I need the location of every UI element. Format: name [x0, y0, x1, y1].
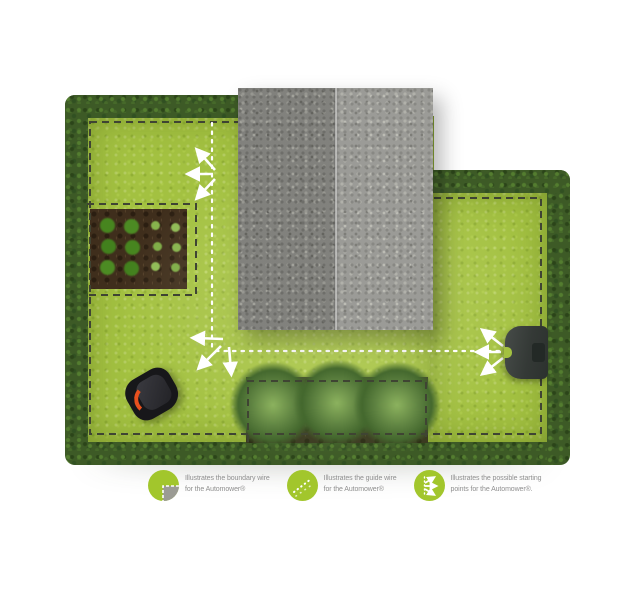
legend: Illustrates the boundary wire for the Au…	[148, 470, 541, 501]
legend-item-guide-wire: Illustrates the guide wire for the Autom…	[287, 470, 397, 501]
hedge-right	[547, 170, 570, 465]
lawn-surface-right	[430, 191, 548, 443]
boundary-wire-icon	[148, 470, 179, 501]
legend-line: Illustrates the boundary wire	[185, 474, 270, 485]
legend-text-starting-points: Illustrates the possible starting points…	[451, 470, 542, 495]
hedge-left	[65, 95, 88, 465]
bush	[353, 361, 441, 449]
legend-item-starting-points: Illustrates the possible starting points…	[414, 470, 542, 501]
guide-wire-icon	[287, 470, 318, 501]
legend-line: for the Automower®	[324, 485, 397, 496]
legend-line: for the Automower®	[185, 485, 270, 496]
legend-line: Illustrates the possible starting	[451, 474, 542, 485]
garden-plants-large	[100, 218, 115, 233]
hedge-top-right	[433, 170, 570, 193]
starting-points-icon	[414, 470, 445, 501]
legend-item-boundary-wire: Illustrates the boundary wire for the Au…	[148, 470, 270, 501]
charging-station	[505, 326, 548, 379]
legend-text-guide-wire: Illustrates the guide wire for the Autom…	[324, 470, 397, 495]
hedge-bottom	[65, 442, 570, 465]
legend-line: points for the Automower®.	[451, 485, 542, 496]
house-roof	[238, 88, 433, 330]
automower-yard-illustration: Illustrates the boundary wire for the Au…	[0, 0, 640, 600]
legend-line: Illustrates the guide wire	[324, 474, 397, 485]
legend-text-boundary-wire: Illustrates the boundary wire for the Au…	[185, 470, 270, 495]
garden-seedlings	[151, 221, 160, 230]
